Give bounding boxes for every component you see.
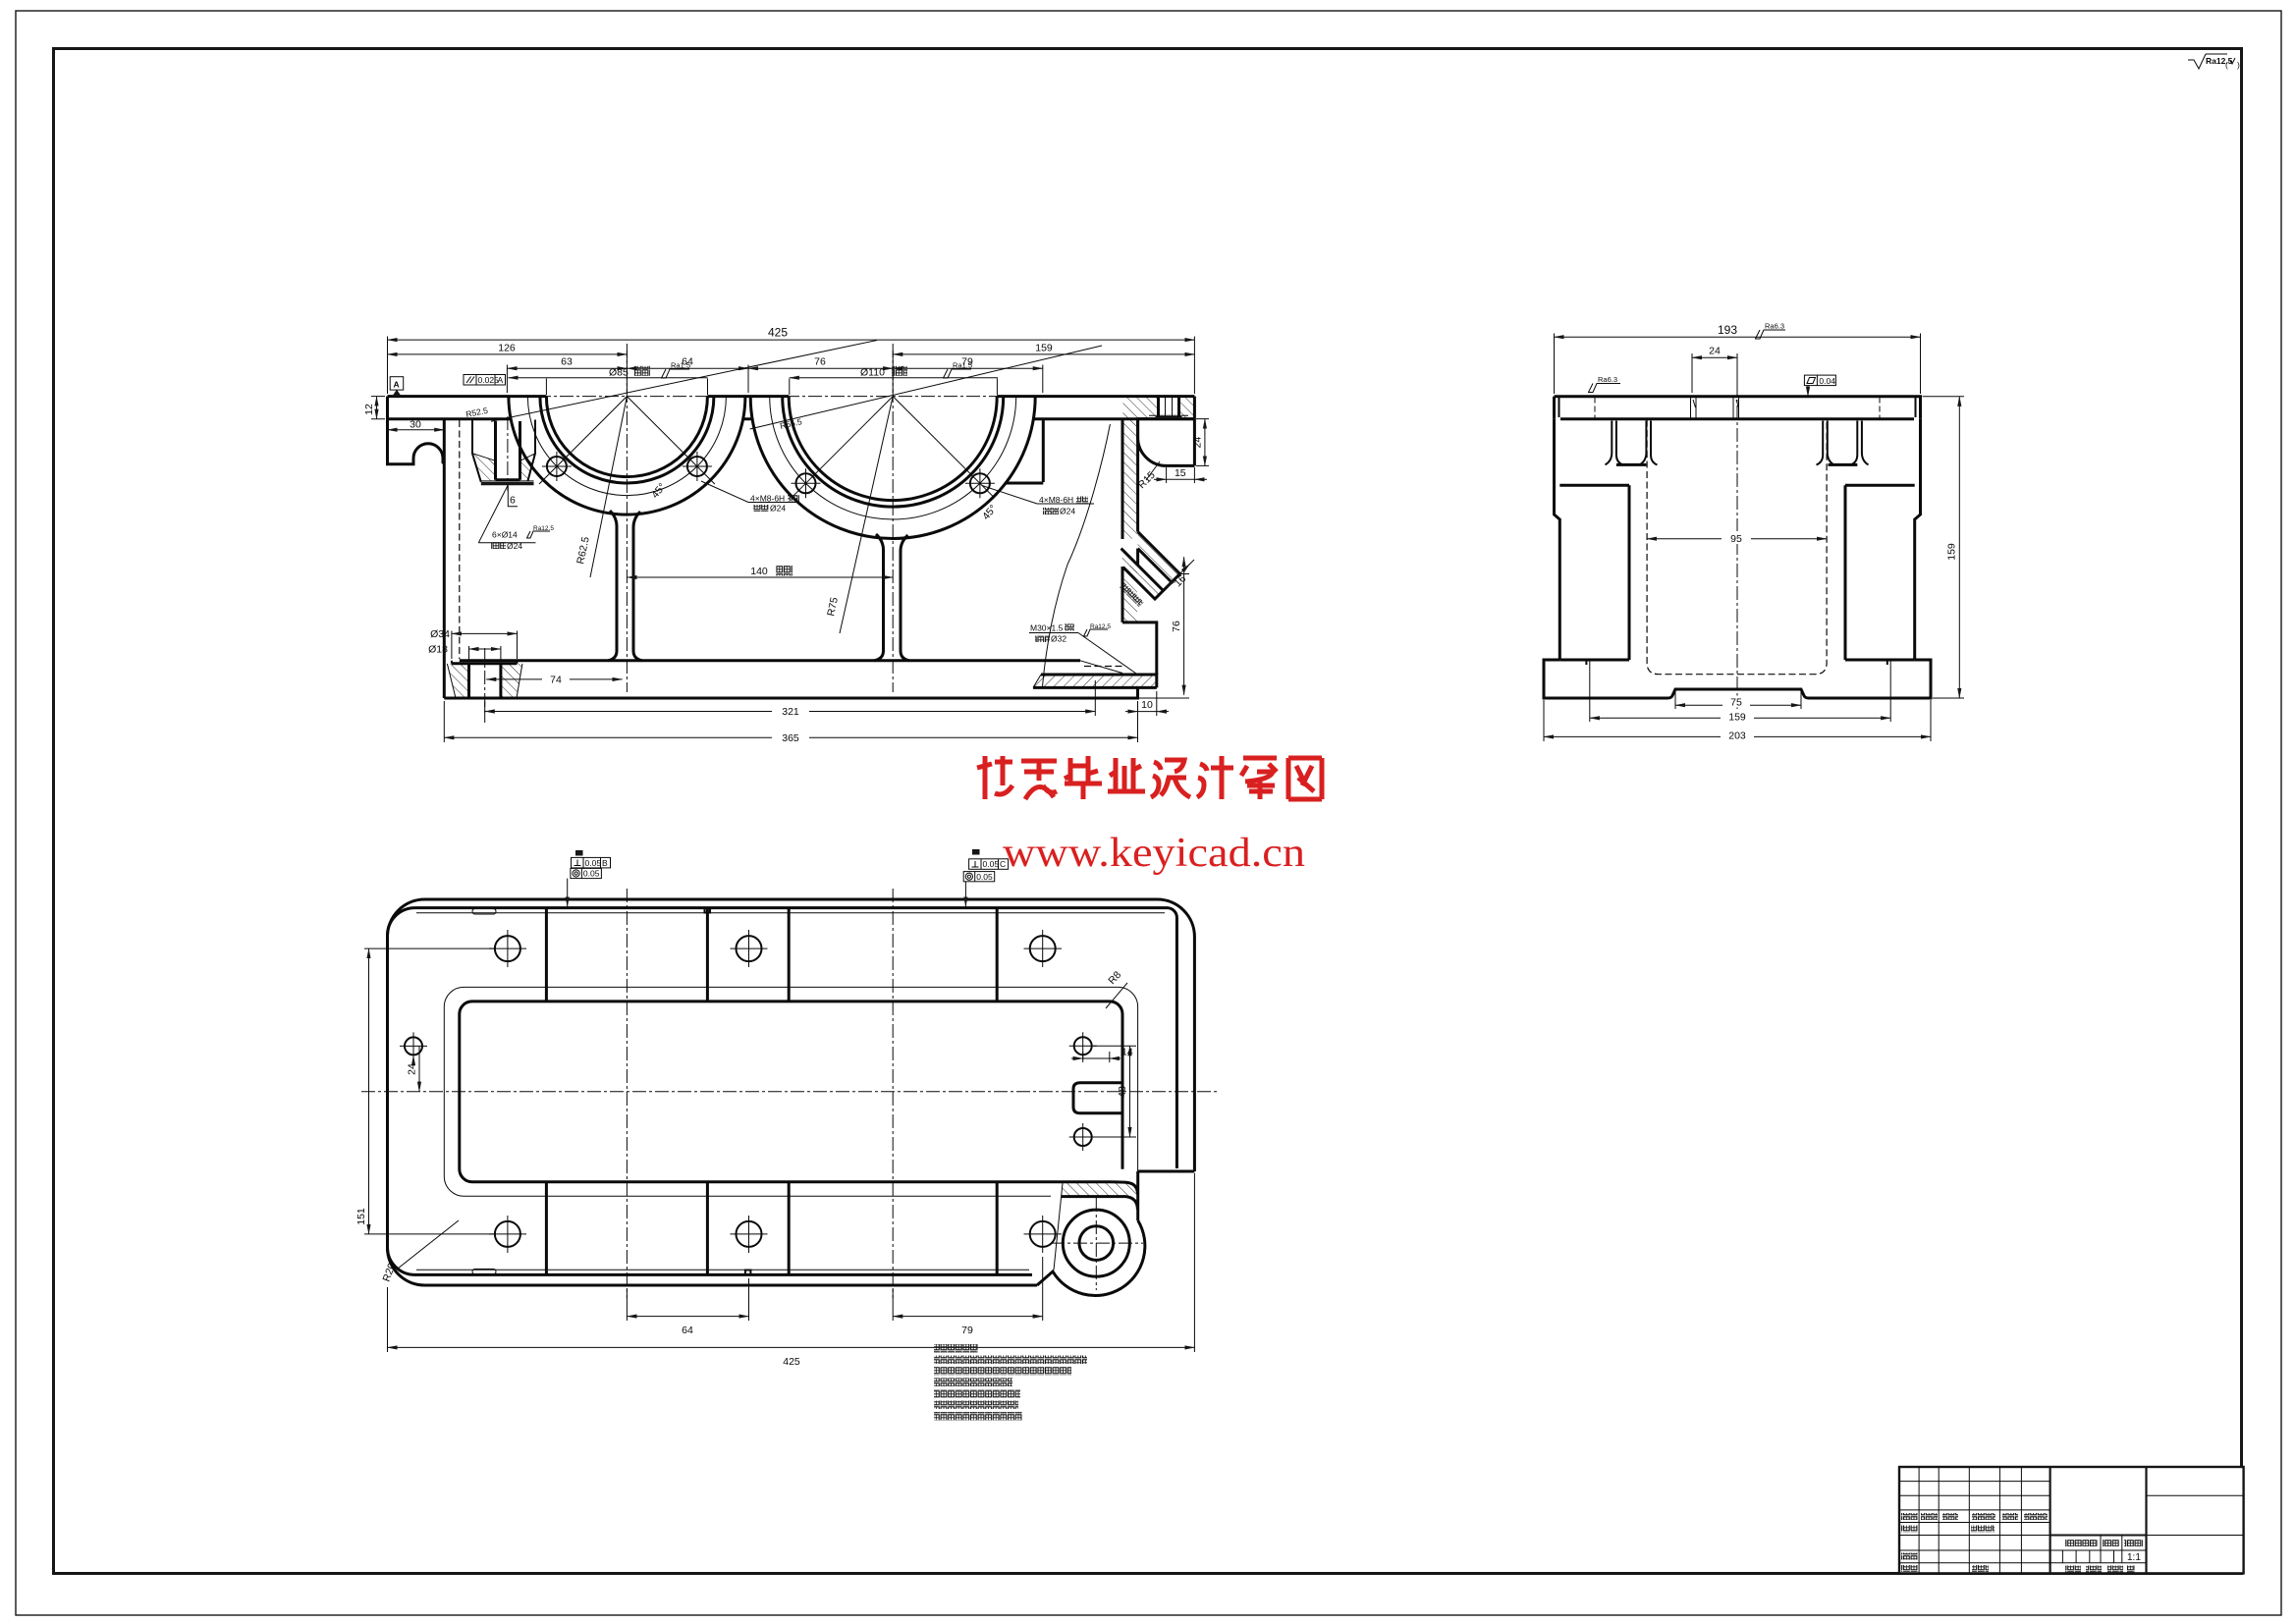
svg-text:Ø18: Ø18 <box>428 644 448 656</box>
svg-text:Ra12.5: Ra12.5 <box>1090 623 1111 630</box>
svg-text:10: 10 <box>1141 699 1153 711</box>
svg-text:(: ( <box>2225 60 2228 70</box>
svg-text:48: 48 <box>1117 1086 1128 1098</box>
svg-text:): ) <box>2237 60 2240 70</box>
svg-text:0.05: 0.05 <box>983 859 1000 869</box>
svg-text:M30×1.5: M30×1.5 <box>1030 623 1064 633</box>
svg-text:0.05: 0.05 <box>976 872 993 882</box>
svg-text:Ø85: Ø85 <box>609 366 629 378</box>
svg-text:64: 64 <box>682 1325 693 1336</box>
svg-text:12: 12 <box>363 404 375 415</box>
svg-text:Ø34: Ø34 <box>430 628 450 640</box>
svg-text:159: 159 <box>1728 712 1746 724</box>
svg-text:Ra6.3: Ra6.3 <box>1598 375 1617 384</box>
svg-text:159: 159 <box>1946 543 1958 561</box>
svg-text:Ra1.5: Ra1.5 <box>953 361 972 370</box>
svg-text:24: 24 <box>407 1063 418 1075</box>
svg-text:Ra6.3: Ra6.3 <box>1765 322 1784 331</box>
svg-text:6×Ø14: 6×Ø14 <box>492 530 518 540</box>
svg-text:193: 193 <box>1718 323 1737 337</box>
svg-text:Ra12.5: Ra12.5 <box>2206 56 2233 66</box>
svg-text:63: 63 <box>561 356 573 368</box>
svg-text:76: 76 <box>814 356 826 368</box>
svg-text:30: 30 <box>410 419 421 431</box>
svg-text:1:1: 1:1 <box>2127 1552 2141 1563</box>
svg-text:0.05: 0.05 <box>585 858 602 868</box>
svg-text:365: 365 <box>782 732 799 744</box>
svg-text:140: 140 <box>750 566 768 577</box>
svg-text:6: 6 <box>510 495 516 507</box>
svg-text:Ø24: Ø24 <box>770 504 786 514</box>
svg-text:74: 74 <box>550 675 562 686</box>
svg-text:95: 95 <box>1730 533 1742 545</box>
svg-text:Ra12.5: Ra12.5 <box>533 525 554 532</box>
svg-text:Ø110: Ø110 <box>860 366 885 378</box>
svg-text:126: 126 <box>498 342 516 353</box>
svg-text:B: B <box>602 858 608 868</box>
svg-text:Ø32: Ø32 <box>1051 634 1066 644</box>
svg-text:75: 75 <box>1730 697 1742 709</box>
svg-text:A: A <box>394 380 400 390</box>
svg-text:Ø24: Ø24 <box>1060 507 1075 516</box>
svg-text:24: 24 <box>1709 346 1721 357</box>
svg-text:321: 321 <box>782 706 799 718</box>
svg-text:425: 425 <box>768 326 788 340</box>
svg-text:14: 14 <box>1121 1047 1133 1058</box>
svg-text:203: 203 <box>1728 730 1746 742</box>
svg-text:0.05: 0.05 <box>583 869 600 879</box>
svg-text:Ra1.5: Ra1.5 <box>671 361 690 370</box>
svg-text:0.025: 0.025 <box>478 375 500 385</box>
svg-text:15: 15 <box>1175 467 1186 479</box>
svg-text:151: 151 <box>355 1208 367 1225</box>
svg-text:159: 159 <box>1035 342 1053 353</box>
svg-text:0.04: 0.04 <box>1819 376 1835 386</box>
svg-text:76: 76 <box>1171 621 1182 632</box>
svg-text:24: 24 <box>1192 437 1204 449</box>
svg-text:425: 425 <box>783 1356 800 1368</box>
svg-text:A: A <box>498 375 504 385</box>
svg-text:79: 79 <box>961 1325 973 1336</box>
svg-text:www.keyicad.cn: www.keyicad.cn <box>1003 831 1305 876</box>
